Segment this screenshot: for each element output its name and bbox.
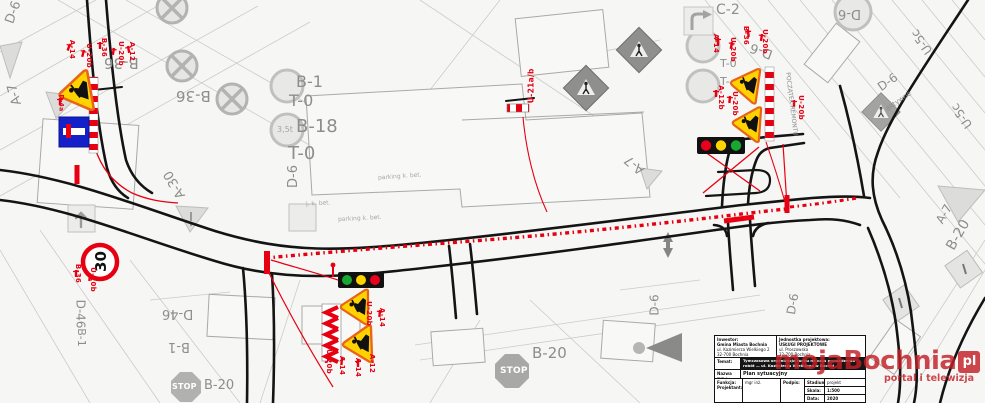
red-label-u20b: U-20b <box>89 267 96 292</box>
map-label-d6: D-6 <box>287 165 300 188</box>
red-label-u20b: U-20b <box>325 349 332 374</box>
skala-label: Skala: <box>805 387 825 394</box>
inwestor-addr2: 32-700 Bochnia <box>717 352 748 357</box>
rysunek-label: Nazwa rys.: <box>715 370 741 378</box>
temat-label: Temat: <box>715 358 741 369</box>
site-plan-canvas: B-36 B-36 B-1 T-0 B-18 T-0 3,5t D-6 A-30… <box>0 0 985 403</box>
red-label-u20b: U-20b <box>731 91 738 116</box>
red-label-u20b: U-20b <box>85 43 92 68</box>
pedestrian-crossing-sign <box>563 65 608 110</box>
watermark-brand: mojaBochnia <box>774 346 956 376</box>
red-label-a12b: A-12b <box>717 85 724 110</box>
map-label-d6: D-6 <box>785 293 801 316</box>
map-label-d46: D-46 <box>162 307 193 320</box>
red-label-b36: B-36 <box>74 264 81 283</box>
red-label-u20b: U-20b <box>761 29 768 54</box>
map-label-t0: T-0 <box>288 145 315 163</box>
red-label-b36: B-36 <box>100 38 107 57</box>
red-label-a14: A-14 <box>354 358 361 377</box>
map-label-b18: B-18 <box>296 118 338 136</box>
dead-end-sign <box>59 117 89 147</box>
skala-value: 1:500 <box>825 387 865 394</box>
data-label: Data: <box>805 395 825 402</box>
data-value: 2020 <box>825 395 865 402</box>
traffic-light-right <box>697 137 745 154</box>
red-label-u20b: U-20b <box>117 41 124 66</box>
barrier-u21-small <box>507 104 529 112</box>
red-label-a14: A-14 <box>712 34 719 53</box>
red-label-d4a: D-4a <box>58 94 64 111</box>
traffic-light-center <box>338 272 384 288</box>
red-label-a14: A-14 <box>68 40 75 59</box>
map-label-c2: C-2 <box>716 3 740 17</box>
watermark: mojaBochniapl portal i telewizja <box>774 348 982 384</box>
turn-right-sign <box>684 7 713 35</box>
map-label-b1: B-1 <box>296 74 323 90</box>
red-label-b36: B-36 <box>742 26 749 45</box>
map-label-d6: D-6 <box>838 7 861 20</box>
projektant-label: Projektant: <box>717 385 742 390</box>
map-label-b20: B-20 <box>532 346 567 361</box>
pedestrian-crossing-sign <box>616 27 661 72</box>
red-label-u20b: U-20b <box>797 95 804 120</box>
red-label-u20b: U-20b <box>365 301 372 326</box>
barrier-board-striped <box>765 67 774 141</box>
red-label-a12: A-12 <box>128 42 135 61</box>
map-label-t0: T-0 <box>289 93 313 109</box>
map-label-parcel: j. k. bet. <box>306 200 331 207</box>
map-label-d6: D-6 <box>649 294 661 315</box>
map-label-b1: B-1 <box>76 328 87 347</box>
map-label-b20: B-20 <box>204 379 234 392</box>
stop-sign-text: STOP <box>172 383 197 391</box>
red-label-u21ab: U-21a/b <box>528 68 536 103</box>
stop-sign-text: STOP <box>500 367 528 376</box>
map-label-35t: 3,5t <box>277 126 293 134</box>
map-label-d46: D-46 <box>74 300 86 329</box>
map-label-b1: B-1 <box>168 340 190 353</box>
red-label-a14: A-14 <box>338 356 345 375</box>
red-label-a14: A-14 <box>378 308 385 327</box>
map-label-b36: B-36 <box>176 88 211 103</box>
red-label-u20b: U-20b <box>729 37 736 62</box>
red-label-a12: A-12 <box>368 354 375 373</box>
watermark-pl-badge: pl <box>958 351 980 373</box>
